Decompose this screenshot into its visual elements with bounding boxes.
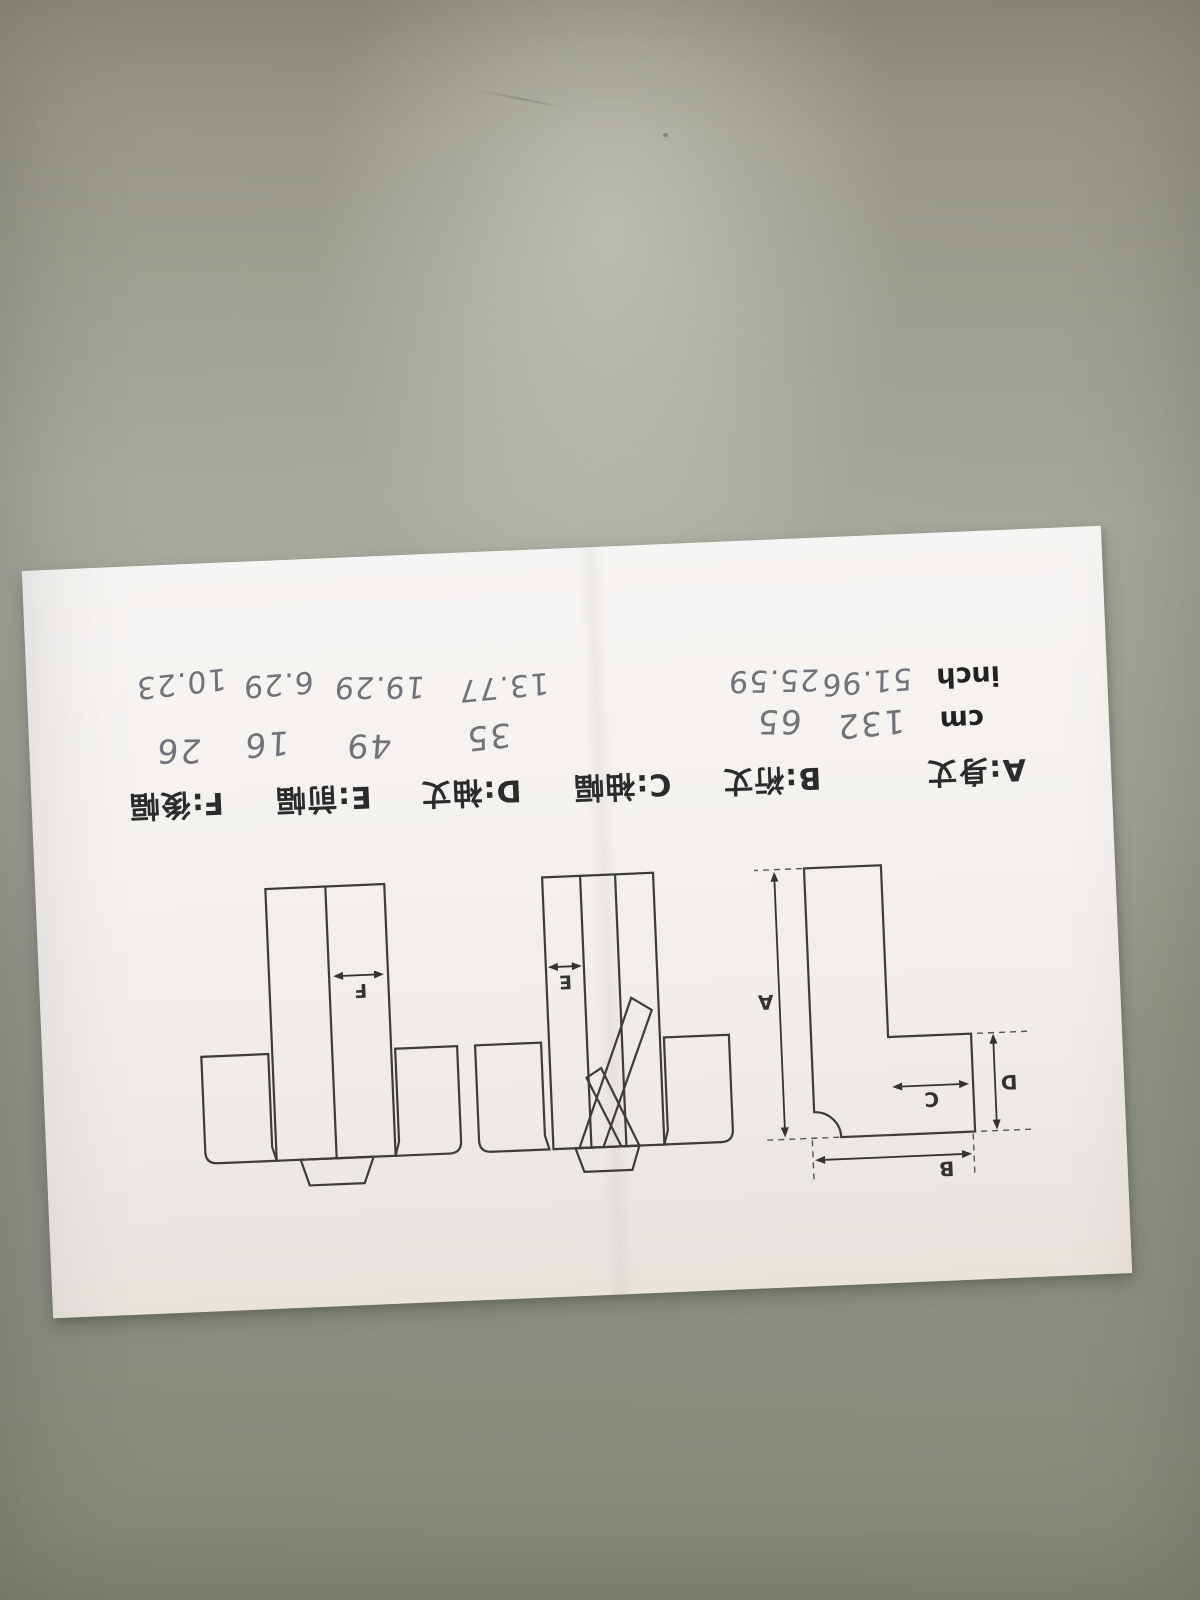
- left-sleeve: [391, 1046, 461, 1156]
- arrowhead: [572, 962, 582, 970]
- dimension-label-d: D: [1000, 1070, 1018, 1095]
- neckband: [575, 1146, 640, 1173]
- guide-line: [812, 1140, 814, 1179]
- dimension-label-f: F: [354, 979, 368, 1002]
- dimension-arrow-e: [556, 966, 574, 967]
- legend-item-c: C:袖幅: [573, 765, 673, 813]
- legend-item-f: F:後幅: [128, 784, 225, 832]
- handwritten-cm-e: 16: [242, 723, 290, 766]
- guide-line: [977, 1129, 1031, 1131]
- desk-scratch: [476, 89, 567, 109]
- front-body-outline: [542, 873, 664, 1149]
- handwritten-inch-e: 6.29: [243, 664, 314, 705]
- dimension-arrow-a: [774, 882, 784, 1128]
- handwritten-inch-f: 10.23: [136, 660, 227, 705]
- guide-line: [765, 1137, 839, 1140]
- arrowhead: [374, 970, 384, 978]
- handwritten-inch-b: 25.59: [727, 661, 820, 698]
- dimension-arrow-c: [902, 1084, 959, 1086]
- dimension-label-a: A: [757, 990, 774, 1015]
- left-sleeve: [660, 1035, 733, 1145]
- guide-line: [973, 1031, 1027, 1033]
- handwritten-cm-b: 65: [754, 702, 804, 741]
- kimono-body-outline: [804, 862, 975, 1138]
- unit-label-cm: cm: [939, 703, 984, 736]
- guide-line: [973, 1134, 975, 1173]
- diagram-body-measurements: B A C D: [749, 846, 1035, 1187]
- handwritten-inch-a: 51.96: [821, 660, 913, 702]
- handwritten-cm-d: 49: [344, 726, 393, 765]
- arrowhead: [815, 1156, 825, 1164]
- unit-label-inch: inch: [936, 659, 1001, 693]
- legend-item-e: E:前幅: [274, 778, 372, 826]
- center-back-seam: [325, 887, 336, 1159]
- diagram-front-width: E: [460, 857, 743, 1183]
- handwritten-inch-d: 19.29: [332, 669, 426, 705]
- arrowhead: [892, 1083, 902, 1091]
- arrowhead: [993, 1119, 1001, 1129]
- arrowhead: [770, 872, 778, 882]
- handwritten-cm-a: 132: [836, 701, 906, 747]
- legend-item-b: B:裄丈: [722, 759, 823, 807]
- right-sleeve: [201, 1054, 276, 1164]
- dimension-arrow-d: [993, 1041, 996, 1123]
- measurement-sheet: B A C D: [22, 526, 1132, 1319]
- arrowhead: [989, 1034, 997, 1044]
- diagram-back-width: F: [187, 868, 470, 1194]
- panel-seam: [580, 876, 591, 1148]
- desk-photo: B A C D: [0, 0, 1200, 1600]
- dimension-arrow-f: [343, 975, 374, 976]
- legend-item-a: A:身丈: [926, 750, 1028, 798]
- arrowhead: [548, 963, 558, 971]
- dimension-label-c: C: [924, 1087, 940, 1112]
- desk-speck: [663, 133, 668, 137]
- dimension-label-b: B: [939, 1156, 955, 1181]
- handwritten-cm-f: 26: [154, 731, 203, 770]
- arrowhead: [962, 1150, 972, 1158]
- legend-item-d: D:袖丈: [420, 771, 523, 819]
- handwritten-inch-c: 13.77: [458, 665, 549, 709]
- handwritten-cm-c: 35: [465, 715, 512, 759]
- arrowhead: [333, 972, 343, 980]
- right-sleeve: [475, 1042, 549, 1152]
- dimension-label-e: E: [559, 970, 573, 993]
- neckband-back: [301, 1157, 375, 1186]
- arrowhead: [781, 1127, 789, 1137]
- guide-line: [754, 869, 802, 871]
- arrowhead: [959, 1080, 969, 1088]
